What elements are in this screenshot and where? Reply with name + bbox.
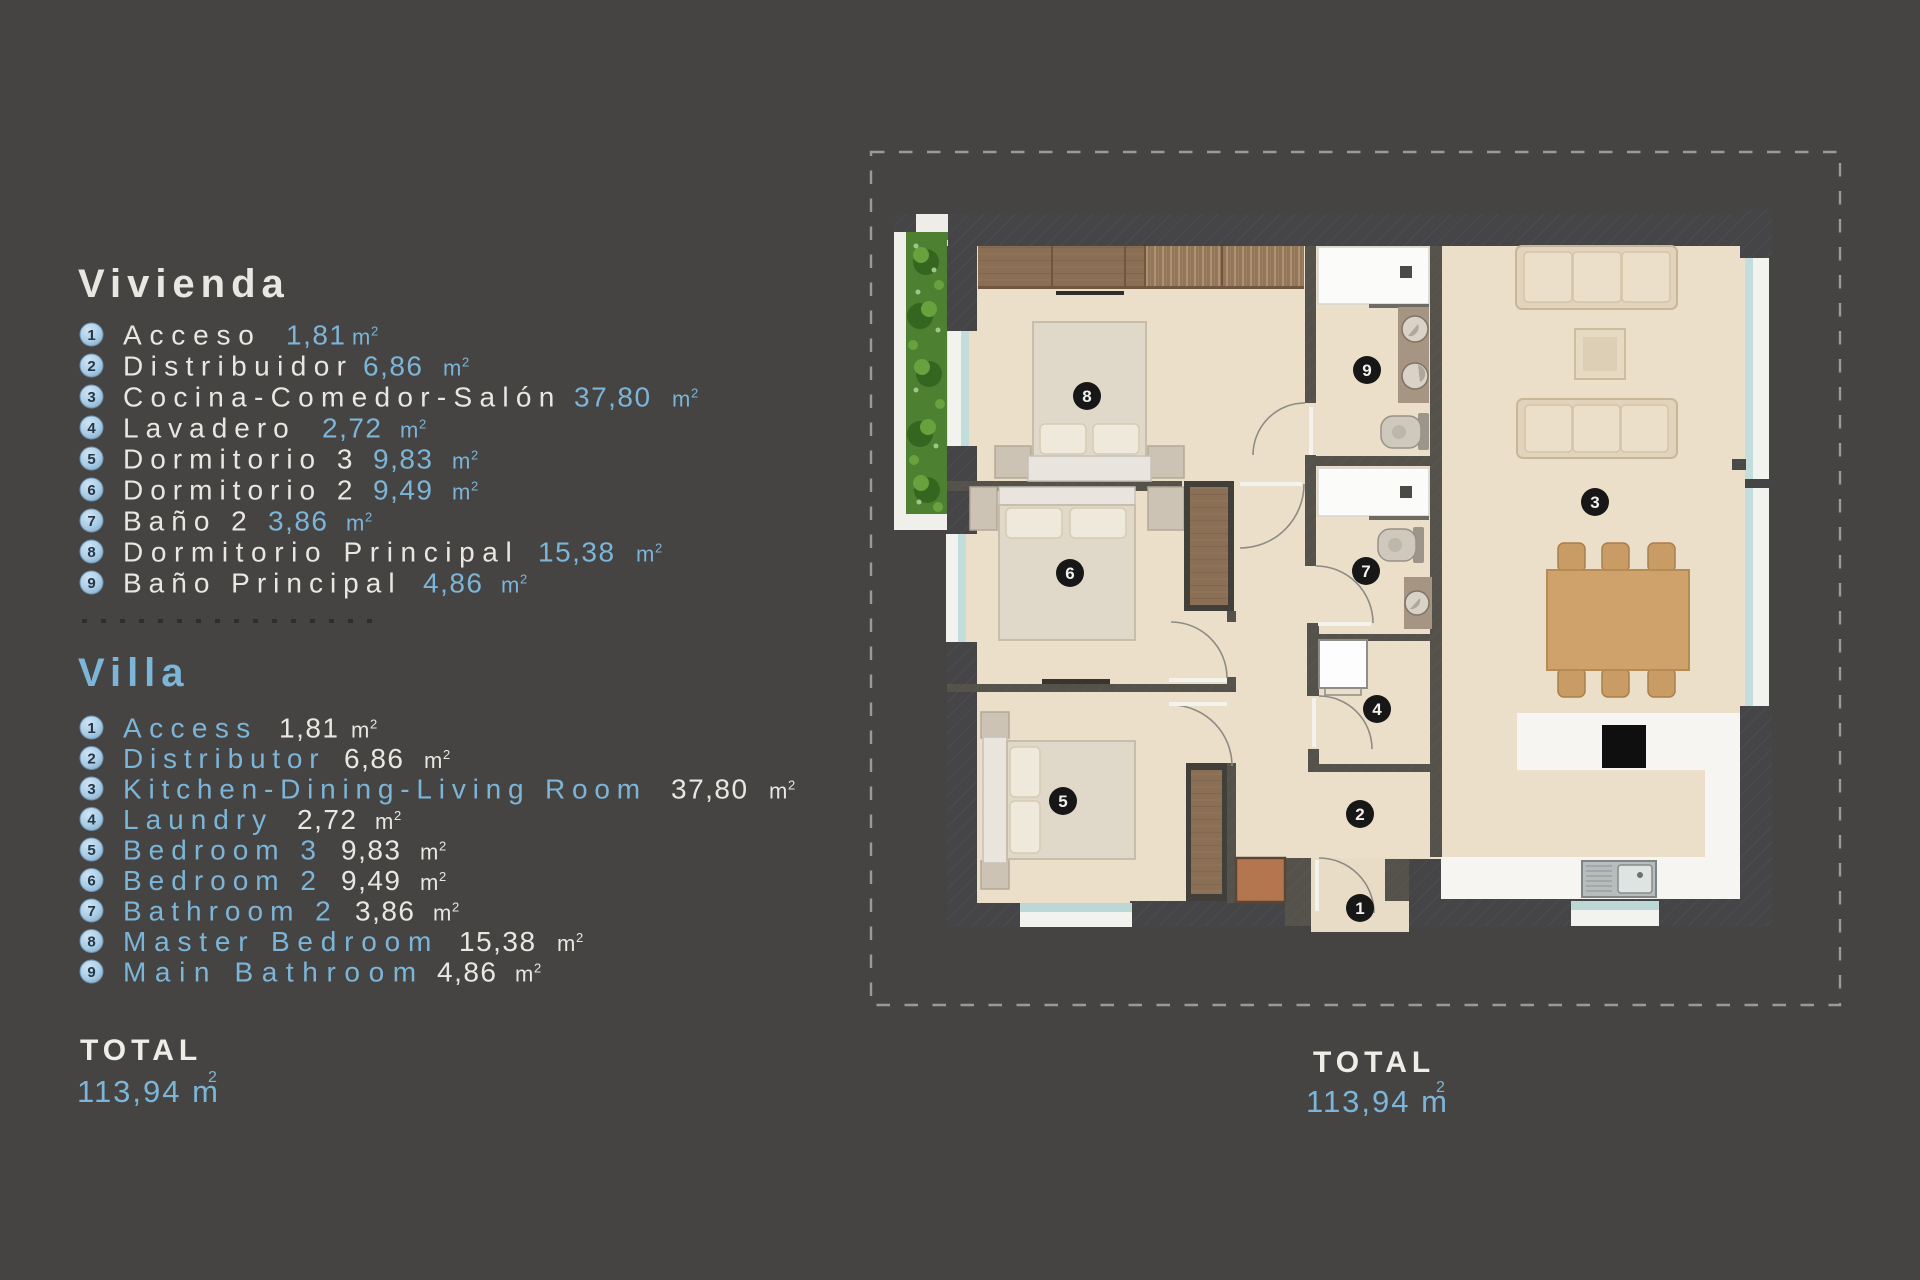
svg-text:9,83: 9,83 [341, 835, 402, 866]
svg-text:3,86: 3,86 [268, 506, 329, 537]
svg-text:3: 3 [87, 781, 95, 798]
svg-text:2: 2 [439, 869, 446, 884]
svg-text:7: 7 [87, 903, 95, 920]
svg-text:7: 7 [1361, 562, 1370, 581]
svg-text:5: 5 [87, 451, 95, 468]
svg-text:1: 1 [87, 720, 95, 737]
svg-text:m: m [769, 779, 787, 804]
svg-text:3: 3 [87, 389, 95, 406]
svg-text:2: 2 [534, 961, 541, 976]
svg-text:2,72: 2,72 [297, 804, 358, 835]
svg-text:3,86: 3,86 [355, 896, 416, 927]
svg-text:7: 7 [87, 513, 95, 530]
svg-text:8: 8 [87, 934, 95, 951]
svg-text:m: m [400, 418, 418, 443]
svg-text:2: 2 [691, 386, 698, 401]
svg-text:2: 2 [439, 839, 446, 854]
svg-text:m: m [501, 573, 519, 598]
svg-text:4: 4 [87, 420, 96, 437]
svg-text:37,80: 37,80 [574, 382, 652, 413]
svg-text:m: m [452, 480, 470, 505]
svg-text:2: 2 [419, 417, 426, 432]
svg-text:Cocina-Comedor-Salón: Cocina-Comedor-Salón [123, 382, 562, 413]
svg-text:m: m [557, 931, 575, 956]
svg-text:6: 6 [87, 873, 95, 890]
svg-text:m: m [433, 901, 451, 926]
svg-text:m: m [420, 840, 438, 865]
svg-text:TOTAL: TOTAL [1313, 1046, 1435, 1079]
svg-text:6,86: 6,86 [363, 351, 424, 382]
svg-text:m: m [420, 870, 438, 895]
svg-text:Bedroom 2: Bedroom 2 [123, 865, 323, 896]
svg-text:m: m [672, 387, 690, 412]
svg-text:m: m [352, 325, 370, 350]
svg-text:2: 2 [788, 778, 795, 793]
svg-text:6,86: 6,86 [344, 743, 405, 774]
svg-text:4: 4 [1372, 700, 1382, 719]
svg-text:Main Bathroom: Main Bathroom [123, 957, 425, 988]
svg-text:5: 5 [1058, 792, 1067, 811]
svg-text:Master Bedroom: Master Bedroom [123, 926, 439, 957]
svg-text:Dormitorio Principal: Dormitorio Principal [123, 537, 519, 568]
svg-text:2: 2 [471, 448, 478, 463]
svg-text:2: 2 [655, 541, 662, 556]
svg-text:3: 3 [1590, 493, 1599, 512]
svg-text:4: 4 [87, 812, 96, 829]
svg-text:6: 6 [1065, 564, 1074, 583]
svg-text:5: 5 [87, 842, 95, 859]
svg-text:6: 6 [87, 482, 95, 499]
svg-text:Villa: Villa [78, 651, 190, 695]
svg-text:Vivienda: Vivienda [78, 262, 290, 306]
svg-text:m: m [515, 962, 533, 987]
svg-text:2: 2 [87, 358, 95, 375]
svg-text:113,94 m: 113,94 m [77, 1074, 220, 1109]
svg-text:2: 2 [87, 751, 95, 768]
svg-text:Bathroom 2: Bathroom 2 [123, 896, 338, 927]
svg-text:2: 2 [371, 324, 378, 339]
svg-text:8: 8 [87, 544, 95, 561]
svg-text:Access: Access [123, 713, 258, 744]
svg-text:1: 1 [87, 327, 95, 344]
svg-text:15,38: 15,38 [459, 926, 537, 957]
svg-text:Lavadero: Lavadero [123, 413, 296, 444]
svg-text:2: 2 [471, 479, 478, 494]
svg-text:m: m [424, 748, 442, 773]
svg-text:2: 2 [443, 747, 450, 762]
svg-text:2: 2 [1355, 805, 1364, 824]
svg-text:Bedroom 3: Bedroom 3 [123, 835, 323, 866]
svg-text:113,94 m: 113,94 m [1306, 1084, 1449, 1119]
svg-text:Dormitorio 2: Dormitorio 2 [123, 475, 359, 506]
svg-text:1: 1 [1355, 899, 1364, 918]
svg-text:Baño Principal: Baño Principal [123, 568, 402, 599]
svg-text:1,81: 1,81 [286, 320, 347, 351]
svg-text:2,72: 2,72 [322, 413, 383, 444]
svg-text:9,49: 9,49 [341, 865, 402, 896]
svg-text:m: m [351, 718, 369, 743]
svg-text:Acceso: Acceso [123, 320, 262, 351]
svg-text:Distribuidor: Distribuidor [123, 351, 353, 382]
svg-text:15,38: 15,38 [538, 537, 616, 568]
svg-text:9: 9 [87, 964, 95, 981]
svg-text:9,49: 9,49 [373, 475, 434, 506]
svg-text:37,80: 37,80 [671, 774, 749, 805]
svg-text:2: 2 [462, 355, 469, 370]
svg-text:2: 2 [208, 1069, 217, 1086]
svg-text:4,86: 4,86 [437, 957, 498, 988]
svg-text:Distributor: Distributor [123, 743, 325, 774]
svg-text:4,86: 4,86 [423, 568, 484, 599]
svg-text:Baño 2: Baño 2 [123, 506, 254, 537]
svg-text:2: 2 [452, 900, 459, 915]
svg-text:9,83: 9,83 [373, 444, 434, 475]
svg-text:8: 8 [1082, 387, 1091, 406]
svg-text:m: m [452, 449, 470, 474]
svg-text:2: 2 [394, 808, 401, 823]
svg-text:Kitchen-Dining-Living Room: Kitchen-Dining-Living Room [123, 774, 647, 805]
svg-text:Laundry: Laundry [123, 804, 273, 835]
svg-text:2: 2 [370, 717, 377, 732]
svg-text:2: 2 [576, 930, 583, 945]
svg-text:2: 2 [365, 510, 372, 525]
svg-text:2: 2 [520, 572, 527, 587]
svg-text:2: 2 [1436, 1079, 1445, 1096]
svg-text:9: 9 [87, 575, 95, 592]
svg-text:m: m [636, 542, 654, 567]
svg-text:m: m [443, 356, 461, 381]
svg-text:m: m [346, 511, 364, 536]
svg-text:TOTAL: TOTAL [80, 1034, 202, 1067]
svg-text:9: 9 [1362, 361, 1371, 380]
svg-text:1,81: 1,81 [279, 713, 340, 744]
svg-text:m: m [375, 809, 393, 834]
svg-text:Dormitorio 3: Dormitorio 3 [123, 444, 359, 475]
